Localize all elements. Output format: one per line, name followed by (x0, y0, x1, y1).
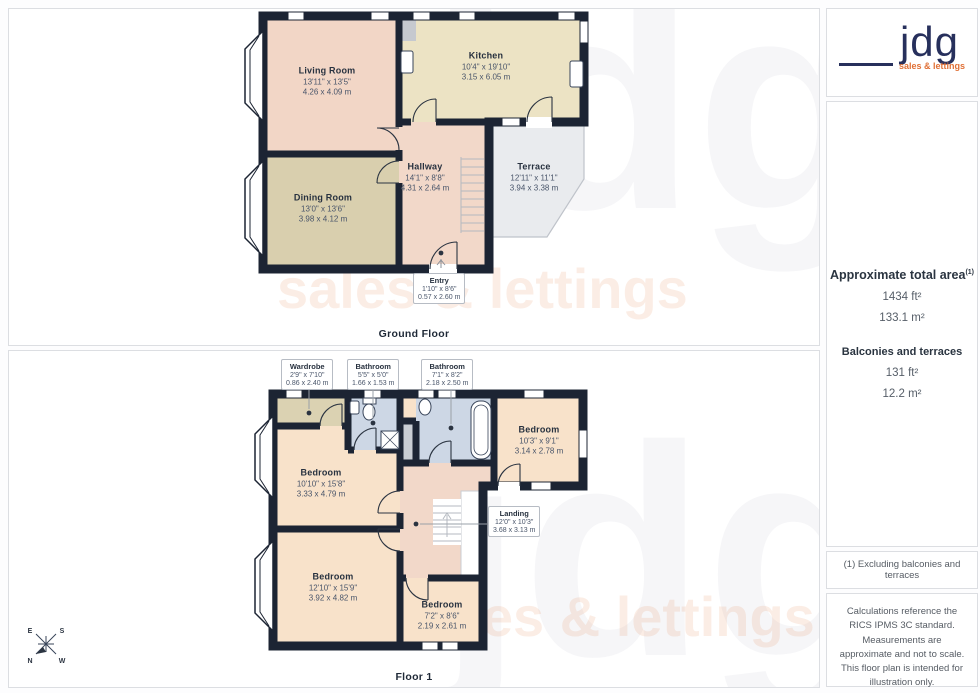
disclaimer-box: Calculations reference the RICS IPMS 3C … (826, 593, 978, 687)
disclaimer-text: Calculations reference the RICS IPMS 3C … (839, 605, 965, 691)
first-floor-caption: Floor 1 (9, 671, 819, 683)
compass-w: W (59, 658, 66, 665)
ground-floor-caption: Ground Floor (9, 328, 819, 340)
callout-bathroom-large: Bathroom 7'1" x 8'2" 2.18 x 2.50 m (421, 359, 473, 390)
floorplan-page: jdg sales & lettings (0, 0, 980, 693)
compass-n: N (27, 658, 32, 665)
callout-wardrobe: Wardrobe 2'9" x 7'10" 0.86 x 2.40 m (281, 359, 333, 390)
total-area-m: 133.1 m² (827, 312, 977, 324)
area-summary: Approximate total area(1) 1434 ft² 133.1… (826, 101, 978, 547)
first-floor-panel: jdg sales & lettings (8, 350, 820, 688)
footnote-box: (1) Excluding balconies and terraces (826, 551, 978, 589)
area-heading-footnote: (1) (965, 269, 974, 276)
logo-underline (839, 63, 893, 66)
compass-e: E (28, 628, 33, 635)
callout-entry: Entry 1'10" x 8'6" 0.57 x 2.60 m (413, 273, 465, 304)
first-floor-drawing: E S N W (9, 351, 819, 687)
compass-icon: E S N W (27, 628, 65, 665)
area-heading: Approximate total area(1) (827, 268, 977, 282)
logo-wordmark: jdg (827, 21, 977, 63)
callout-landing: Landing 12'0" x 10'3" 3.68 x 3.13 m (488, 506, 540, 537)
balconies-area-ft: 131 ft² (827, 367, 977, 379)
total-area-ft: 1434 ft² (827, 291, 977, 303)
balconies-area-m: 12.2 m² (827, 388, 977, 400)
footnote-text: (1) Excluding balconies and terraces (827, 559, 977, 581)
balconies-heading: Balconies and terraces (827, 346, 977, 358)
agency-logo: jdg sales & lettings (826, 8, 978, 97)
ground-floor-panel: jdg sales & lettings (8, 8, 820, 346)
logo-tagline: sales & lettings (899, 61, 965, 71)
compass-s: S (60, 628, 65, 635)
area-heading-text: Approximate total area (830, 268, 965, 282)
callout-bathroom-small: Bathroom 5'5" x 5'0" 1.66 x 1.53 m (347, 359, 399, 390)
